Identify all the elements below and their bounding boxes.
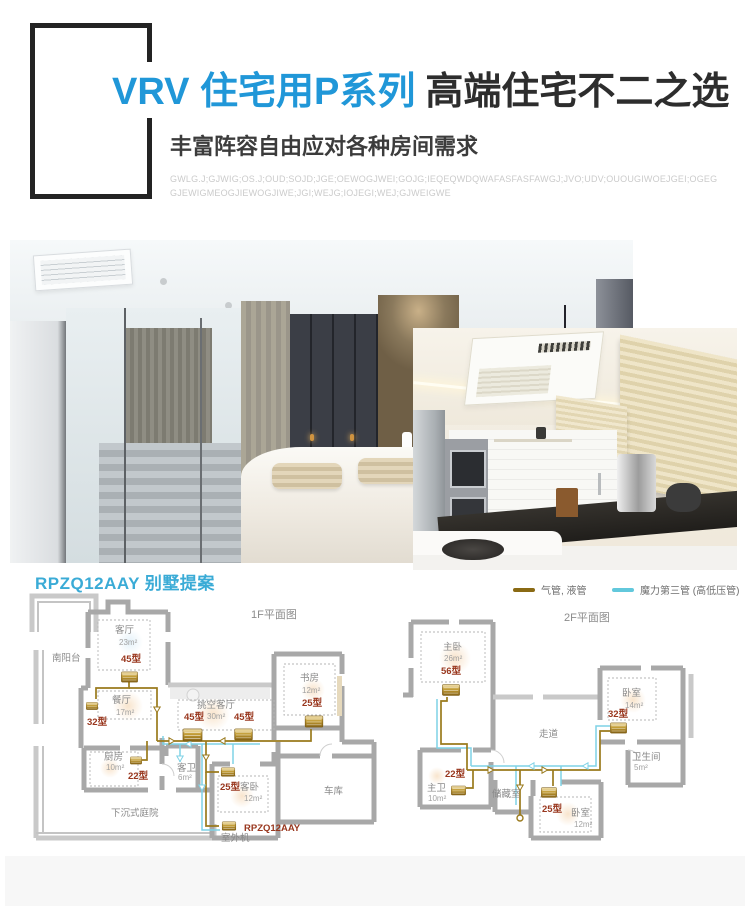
room-master-bed-area: 26m² [444, 654, 463, 663]
unit-model-master-bath: 22型 [445, 768, 466, 780]
indoor-unit-icon [221, 768, 235, 777]
wall-sconce [350, 434, 354, 441]
room-study: 书房 [300, 672, 319, 684]
room-garage: 车库 [324, 785, 344, 797]
unit-model-bedroom-east: 32型 [608, 708, 629, 720]
third-pipe-swatch-icon [612, 588, 634, 592]
indoor-unit-icon [86, 702, 97, 709]
ceiling-spotlight [160, 278, 167, 285]
page-title: VRV 住宅用P系列 高端住宅不二之选 [104, 62, 737, 118]
indoor-unit-icon [451, 786, 465, 795]
wall-sconce [310, 434, 314, 441]
indoor-unit-icon [541, 788, 556, 798]
white-wardrobe [10, 321, 66, 563]
product-page: VRV 住宅用P系列 高端住宅不二之选 丰富阵容自由应对各种房间需求 GWLG.… [0, 0, 750, 906]
room-bedroom-south-area: 12m² [574, 820, 593, 829]
next-section-band [5, 856, 745, 906]
outdoor-unit-model: RPZQ12AAY [244, 823, 301, 834]
concealed-ac-vent [33, 249, 133, 292]
ceiling-cassette-ac [464, 332, 604, 407]
room-master-bath-area: 10m² [428, 794, 447, 803]
indoor-unit-icon [235, 729, 253, 740]
room-dining-area: 17m² [116, 708, 135, 717]
room-bathroom: 卫生间 [632, 751, 661, 763]
wall-shelf [494, 439, 572, 442]
title-slogan: 高端住宅不二之选 [425, 72, 729, 114]
room-study-area: 12m² [302, 686, 321, 695]
study-curtain [337, 676, 342, 716]
unit-model-living: 45型 [121, 653, 142, 665]
void-window-band [170, 688, 270, 699]
indoor-unit-icon [183, 729, 202, 741]
room-kitchen-area: 10m² [106, 763, 125, 772]
unit-model-dining: 32型 [87, 716, 108, 728]
legend-gas-label: 气管, 液管 [541, 582, 587, 597]
riser-connector [517, 815, 523, 821]
legend-gas-liquid: 气管, 液管 [513, 582, 587, 597]
unit-model-study: 25型 [302, 697, 323, 709]
black-pot [666, 483, 702, 512]
outdoor-unit-icon [222, 822, 236, 831]
unit-model-void-right: 45型 [234, 711, 255, 723]
title-series: VRV 住宅用P系列 [112, 72, 415, 114]
room-guest-bed: 客卧 [240, 781, 260, 793]
room-dining: 餐厅 [112, 694, 132, 706]
unit-model-kitchen: 22型 [128, 770, 149, 782]
pipe-arrows-2f [488, 763, 588, 791]
floorplan-1f: 1F平面图 南阳台 客厅 23m² 45型 餐厅 17m² 32型 挑空客厅 3… [28, 588, 410, 883]
knife-block [556, 488, 579, 517]
room-balcony: 南阳台 [52, 652, 81, 664]
floor1-caption: 1F平面图 [251, 608, 297, 621]
glass-frame [200, 318, 202, 563]
room-corridor: 走道 [539, 728, 559, 740]
glass-bathroom [66, 308, 247, 563]
fine-print-line1: GWLG.J;GJWIG;OS.J;OUD;SOJD;JGE;OEWOGJWEI… [170, 172, 717, 186]
kitchen-photo [413, 328, 737, 570]
indoor-unit-icon [442, 685, 459, 696]
glass-frame [124, 308, 126, 563]
floorplan-2f: 2F平面图 主卧 26m² 56型 走道 卧室 14m² 32型 卫生间 5m²… [403, 600, 750, 860]
room-void-living: 挑空客厅 [197, 699, 236, 711]
marble-half-wall [99, 443, 247, 563]
room-bedroom-south: 卧室 [571, 807, 590, 819]
faucet [598, 473, 601, 495]
indoor-unit-icon [305, 716, 323, 727]
room-living: 客厅 [115, 624, 135, 636]
unit-model-master-bed: 56型 [441, 665, 462, 677]
room-guest-bed-area: 12m² [244, 794, 263, 803]
room-master-bed: 主卧 [443, 641, 463, 653]
room-bathroom-area: 5m² [634, 763, 648, 772]
unit-model-bedroom-south: 25型 [542, 803, 563, 815]
room-kitchen: 厨房 [104, 751, 123, 763]
legend-third-label: 魔力第三管 (高低压管) [640, 582, 739, 597]
fine-print-line2: GJEWIGMEOGJIEWOGJIWE;JGI;WEJG;IOJEGI;WEJ… [170, 186, 717, 200]
subtitle: 丰富阵容自由应对各种房间需求 [166, 127, 482, 163]
room-master-bath: 主卫 [427, 782, 447, 794]
striped-pillow [272, 463, 342, 489]
unit-model-guest-bed: 25型 [220, 781, 241, 793]
indoor-unit-icon [130, 757, 141, 764]
gas-pipes-2f [441, 697, 610, 821]
room-void-living-area: 30m² [207, 712, 226, 721]
legend-third-pipe: 魔力第三管 (高低压管) [612, 582, 739, 597]
outdoor-unit-label: 室外机 [221, 832, 250, 844]
room-living-area: 23m² [119, 638, 138, 647]
gas-pipe-swatch-icon [513, 588, 535, 592]
room-guest-bath-area: 6m² [178, 773, 192, 782]
room-courtyard: 下沉式庭院 [111, 807, 159, 819]
indoor-unit-icon [121, 672, 137, 682]
steel-pot [617, 454, 656, 512]
fine-print: GWLG.J;GJWIG;OS.J;OUD;SOJD;JGE;OEWOGJWEI… [170, 172, 717, 200]
dark-bowl [442, 539, 504, 561]
indoor-unit-icon [610, 723, 626, 733]
unit-model-void-left: 45型 [184, 711, 205, 723]
room-storage: 储藏室 [492, 788, 521, 800]
shelf-object [536, 427, 546, 439]
floor2-caption: 2F平面图 [564, 611, 610, 624]
room-bedroom-east: 卧室 [622, 687, 641, 699]
